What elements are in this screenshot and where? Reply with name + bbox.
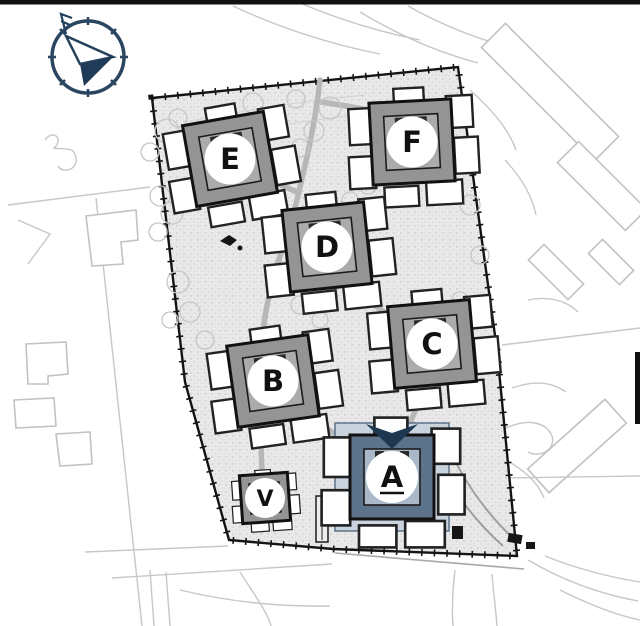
top-border-bar <box>0 0 640 5</box>
building-d-label: D <box>315 230 339 264</box>
north-compass-icon <box>48 14 128 97</box>
building-b-label: B <box>262 364 284 398</box>
right-edge-bar <box>635 352 640 424</box>
building-c-label: C <box>421 327 442 361</box>
building-a-label: A <box>381 460 404 494</box>
building-e-label: E <box>220 142 240 176</box>
building-v-label: V <box>256 487 273 512</box>
building-f-label: F <box>402 125 422 159</box>
site-plan-canvas: E F D C <box>0 0 640 626</box>
